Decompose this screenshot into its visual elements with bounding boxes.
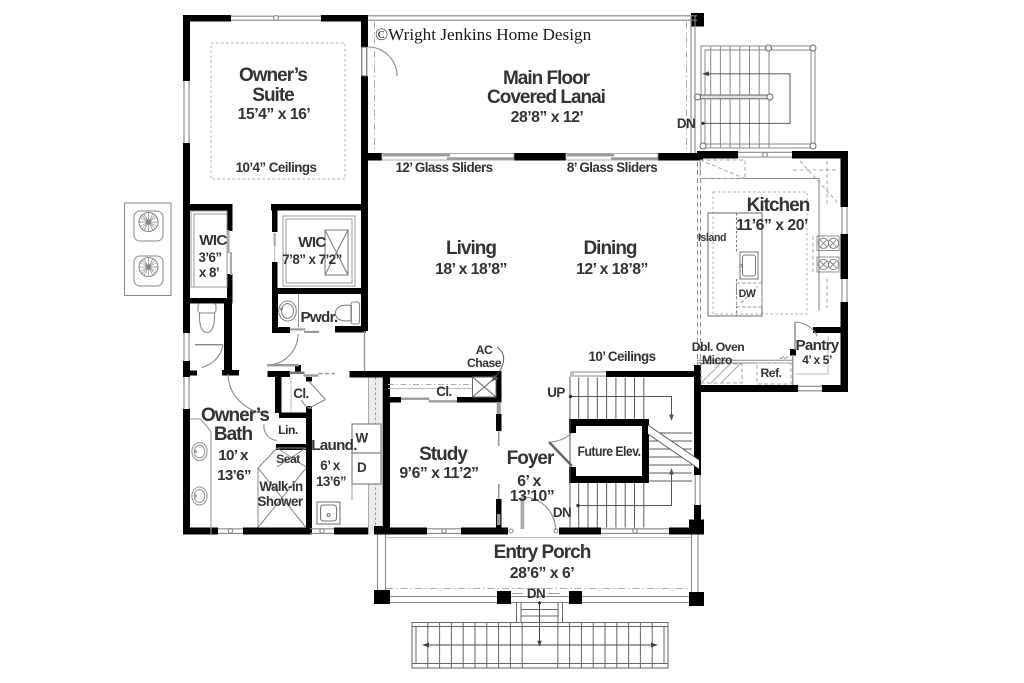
svg-text:28’8” x 12’: 28’8” x 12’ — [511, 109, 584, 126]
svg-text:6’ x: 6’ x — [320, 458, 340, 473]
svg-text:Lin.: Lin. — [278, 423, 298, 437]
svg-text:UP: UP — [547, 385, 565, 400]
svg-text:Kitchen: Kitchen — [747, 195, 810, 216]
svg-text:Dbl. Oven: Dbl. Oven — [692, 340, 744, 354]
svg-text:WIC: WIC — [298, 234, 326, 251]
svg-text:Main Floor: Main Floor — [503, 68, 591, 89]
svg-text:WIC: WIC — [199, 232, 227, 249]
svg-text:11’6” x 20’: 11’6” x 20’ — [736, 217, 808, 234]
svg-text:DW: DW — [739, 288, 756, 300]
svg-text:DN: DN — [553, 505, 571, 520]
svg-text:13’10”: 13’10” — [510, 488, 554, 505]
svg-text:Living: Living — [446, 238, 496, 259]
svg-text:Bath: Bath — [214, 424, 253, 445]
svg-text:12’ x 18’8”: 12’ x 18’8” — [576, 261, 648, 278]
svg-text:Covered Lanai: Covered Lanai — [487, 87, 605, 108]
svg-text:Foyer: Foyer — [507, 448, 555, 469]
svg-text:DN: DN — [677, 116, 695, 131]
svg-text:3’6”: 3’6” — [198, 250, 221, 265]
svg-text:Micro: Micro — [702, 353, 732, 367]
svg-text:Ref.: Ref. — [760, 366, 781, 380]
svg-text:Walk-in: Walk-in — [259, 479, 303, 494]
svg-text:Chase: Chase — [467, 356, 502, 370]
svg-text:9’6” x 11’2”: 9’6” x 11’2” — [399, 465, 478, 482]
svg-text:7’8” x 7’2”: 7’8” x 7’2” — [282, 252, 341, 267]
svg-text:Island: Island — [698, 232, 726, 244]
svg-text:18’ x 18’8”: 18’ x 18’8” — [435, 261, 507, 278]
svg-text:Cl.: Cl. — [436, 384, 451, 399]
svg-text:Suite: Suite — [252, 85, 294, 106]
svg-text:x 8’: x 8’ — [199, 265, 219, 280]
svg-text:13’6”: 13’6” — [217, 467, 251, 484]
svg-text:Cl.: Cl. — [293, 386, 308, 401]
svg-text:15’4” x 16’: 15’4” x 16’ — [238, 106, 311, 123]
svg-text:AC: AC — [476, 343, 493, 357]
svg-text:4’ x 5’: 4’ x 5’ — [802, 353, 832, 367]
svg-text:D: D — [357, 460, 367, 475]
svg-text:W: W — [355, 431, 368, 446]
svg-text:10’ x: 10’ x — [218, 447, 249, 464]
svg-text:Shower: Shower — [257, 494, 303, 509]
svg-text:Study: Study — [419, 444, 468, 465]
svg-text:DN: DN — [527, 586, 545, 601]
svg-text:Seat: Seat — [276, 452, 300, 466]
svg-text:Entry Porch: Entry Porch — [494, 542, 591, 563]
svg-text:Dining: Dining — [583, 238, 636, 259]
svg-text:10’4” Ceilings: 10’4” Ceilings — [236, 160, 317, 175]
svg-text:28’6” x 6’: 28’6” x 6’ — [510, 565, 574, 582]
svg-text:Owner’s: Owner’s — [239, 65, 307, 86]
svg-text:8’ Glass Sliders: 8’ Glass Sliders — [567, 160, 657, 175]
svg-text:©Wright Jenkins Home Design: ©Wright Jenkins Home Design — [375, 25, 592, 44]
svg-text:Pantry: Pantry — [795, 337, 839, 354]
svg-text:13’6”: 13’6” — [316, 474, 346, 489]
svg-text:Future Elev.: Future Elev. — [578, 444, 641, 459]
svg-text:10’ Ceilings: 10’ Ceilings — [588, 349, 655, 364]
svg-text:Pwdr.: Pwdr. — [300, 309, 337, 326]
svg-text:Laund.: Laund. — [311, 437, 357, 454]
svg-text:Owner’s: Owner’s — [201, 405, 269, 426]
svg-text:12’ Glass Sliders: 12’ Glass Sliders — [395, 160, 492, 175]
